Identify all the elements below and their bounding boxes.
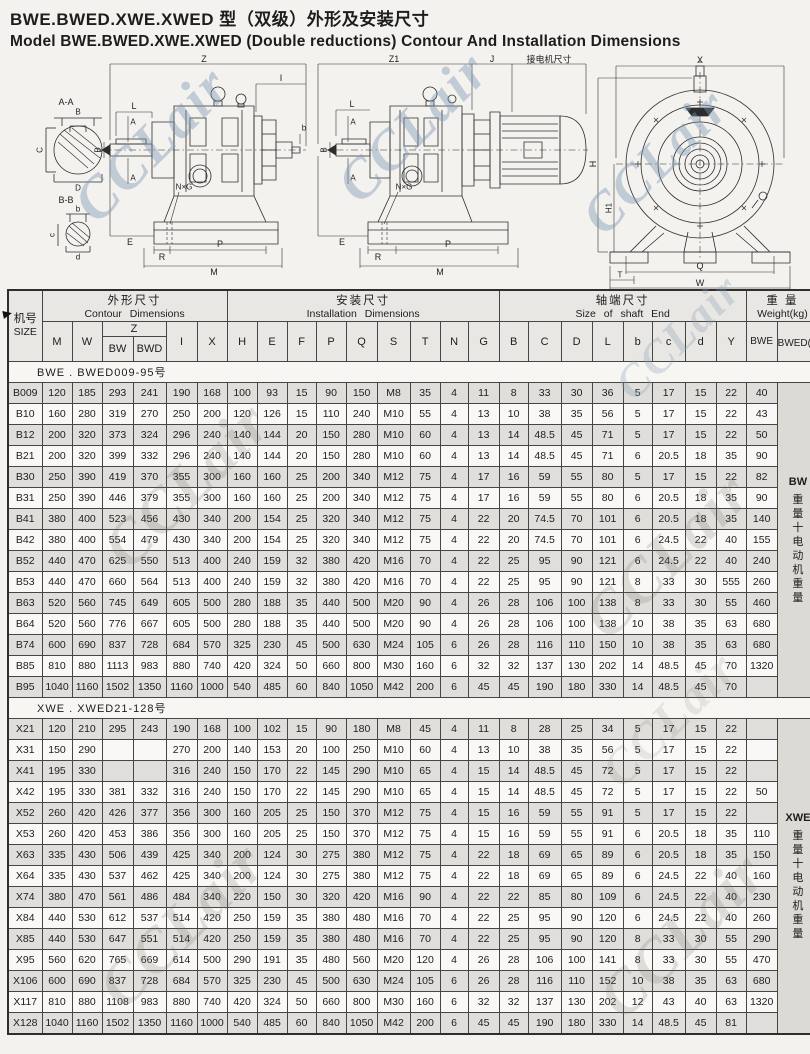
table-row: X5226042042637735630016020525150370M1275… bbox=[8, 803, 810, 824]
value-cell: 100 bbox=[316, 740, 346, 761]
value-cell: 316 bbox=[166, 761, 197, 782]
row-size-cell: X95 bbox=[8, 950, 42, 971]
value-cell: 270 bbox=[133, 404, 166, 425]
value-cell: 8 bbox=[623, 929, 652, 950]
value-cell: 880 bbox=[166, 656, 197, 677]
section-label-aa: A-A bbox=[58, 97, 73, 107]
dim-label-e: E bbox=[127, 237, 133, 247]
value-cell: 150 bbox=[316, 425, 346, 446]
value-cell: 35 bbox=[716, 488, 746, 509]
value-cell: 419 bbox=[102, 467, 133, 488]
value-cell: 32 bbox=[499, 656, 528, 677]
weight-note-char: 量 bbox=[778, 591, 810, 605]
value-cell: 74.5 bbox=[528, 530, 561, 551]
value-cell: 15 bbox=[685, 803, 716, 824]
group-header-1: 安装尺寸Installation Dimensions bbox=[227, 290, 499, 322]
value-cell: 56 bbox=[592, 740, 623, 761]
value-cell: 20.5 bbox=[652, 488, 685, 509]
value-cell: 560 bbox=[346, 950, 377, 971]
value-cell: 420 bbox=[197, 908, 227, 929]
value-cell: 537 bbox=[133, 908, 166, 929]
value-cell: 74.5 bbox=[528, 509, 561, 530]
value-cell: 390 bbox=[72, 488, 102, 509]
value-cell: 35 bbox=[287, 614, 316, 635]
value-cell: 80 bbox=[592, 488, 623, 509]
weight-note-char: 重 bbox=[778, 493, 810, 507]
value-cell: 18 bbox=[685, 824, 716, 845]
value-cell: 17 bbox=[652, 761, 685, 782]
value-cell: 1160 bbox=[72, 677, 102, 698]
value-cell: 200 bbox=[197, 740, 227, 761]
value-cell: 983 bbox=[133, 656, 166, 677]
value-cell: 160 bbox=[227, 824, 257, 845]
value-cell: 55 bbox=[716, 950, 746, 971]
row-size-cell: B53 bbox=[8, 572, 42, 593]
row-size-cell: B21 bbox=[8, 446, 42, 467]
table-row: X128104011601502135011601000540485608401… bbox=[8, 1013, 810, 1035]
weight-note-char: 电 bbox=[778, 871, 810, 885]
value-cell: 110 bbox=[316, 404, 346, 425]
row-size-cell: B12 bbox=[8, 425, 42, 446]
value-cell: M12 bbox=[377, 530, 410, 551]
value-cell: 17 bbox=[468, 467, 499, 488]
value-cell: 48.5 bbox=[652, 1013, 685, 1035]
group-header-zh: 轴端尺寸 bbox=[500, 292, 746, 308]
value-cell: 4 bbox=[440, 845, 468, 866]
value-cell: 15 bbox=[468, 761, 499, 782]
value-cell: 190 bbox=[528, 1013, 561, 1035]
value-cell: 15 bbox=[685, 404, 716, 425]
value-cell: 230 bbox=[746, 887, 777, 908]
value-cell: 75 bbox=[410, 866, 440, 887]
value-cell: 89 bbox=[592, 845, 623, 866]
value-cell: M24 bbox=[377, 635, 410, 656]
value-cell: 24.5 bbox=[652, 530, 685, 551]
value-cell: 647 bbox=[102, 929, 133, 950]
value-cell: 20.5 bbox=[652, 824, 685, 845]
value-cell: 560 bbox=[72, 593, 102, 614]
value-cell: M12 bbox=[377, 824, 410, 845]
value-cell: 22 bbox=[716, 740, 746, 761]
value-cell: 22 bbox=[716, 383, 746, 404]
value-cell: 4 bbox=[440, 404, 468, 425]
value-cell: 20 bbox=[287, 425, 316, 446]
value-cell: 6 bbox=[440, 635, 468, 656]
value-cell: 45 bbox=[561, 761, 592, 782]
value-cell: 14 bbox=[623, 656, 652, 677]
value-cell: 59 bbox=[528, 488, 561, 509]
value-cell: 14 bbox=[499, 761, 528, 782]
section-label: XWE . XWED21-128号 bbox=[8, 698, 810, 719]
table-row: B3125039044637935530016016025200340M1275… bbox=[8, 488, 810, 509]
value-cell: 32 bbox=[468, 992, 499, 1013]
value-cell: 513 bbox=[166, 551, 197, 572]
value-cell: 380 bbox=[316, 908, 346, 929]
value-cell: 59 bbox=[528, 803, 561, 824]
group-header-0: 外形尺寸Contour Dimensions bbox=[42, 290, 227, 322]
value-cell: 20 bbox=[499, 509, 528, 530]
value-cell: 70 bbox=[410, 929, 440, 950]
value-cell: 810 bbox=[42, 656, 72, 677]
value-cell: 4 bbox=[440, 908, 468, 929]
value-cell: 35 bbox=[685, 971, 716, 992]
value-cell: 110 bbox=[561, 971, 592, 992]
value-cell: 5 bbox=[623, 383, 652, 404]
value-cell: 15 bbox=[685, 719, 716, 740]
value-cell: 5 bbox=[623, 719, 652, 740]
value-cell: 484 bbox=[166, 887, 197, 908]
value-cell: 320 bbox=[72, 446, 102, 467]
value-cell: 6 bbox=[440, 992, 468, 1013]
table-row: B5344047066056451340024015932380420M1670… bbox=[8, 572, 810, 593]
dim-label-j: J bbox=[490, 54, 495, 64]
value-cell: 28 bbox=[499, 971, 528, 992]
section-header-row: XWE . XWED21-128号 bbox=[8, 698, 810, 719]
row-size-cell: X84 bbox=[8, 908, 42, 929]
value-cell: 340 bbox=[197, 509, 227, 530]
value-cell: 200 bbox=[316, 488, 346, 509]
value-cell: 30 bbox=[685, 950, 716, 971]
value-cell: 48.5 bbox=[652, 677, 685, 698]
value-cell: 10 bbox=[499, 404, 528, 425]
value-cell: 4 bbox=[440, 887, 468, 908]
value-cell: 740 bbox=[197, 992, 227, 1013]
value-cell: 420 bbox=[227, 992, 257, 1013]
value-cell: 240 bbox=[197, 761, 227, 782]
value-cell: 22 bbox=[685, 551, 716, 572]
value-cell: 625 bbox=[102, 551, 133, 572]
value-cell: M12 bbox=[377, 866, 410, 887]
dimension-table-wrap: 机号SIZE外形尺寸Contour Dimensions安装尺寸Installa… bbox=[7, 289, 810, 1035]
value-cell: 332 bbox=[133, 782, 166, 803]
value-cell: 630 bbox=[346, 635, 377, 656]
value-cell: 8 bbox=[623, 950, 652, 971]
value-cell: 71 bbox=[592, 446, 623, 467]
value-cell: 75 bbox=[410, 824, 440, 845]
drawing-side-view-reducer: Z L A A B I b N×G E R P M A-A B C D B-B … bbox=[4, 54, 310, 290]
value-cell: 124 bbox=[257, 845, 287, 866]
value-cell: 40 bbox=[716, 908, 746, 929]
value-cell: 250 bbox=[227, 929, 257, 950]
value-cell bbox=[746, 740, 777, 761]
dim-label-z1: Z1 bbox=[389, 54, 400, 64]
value-cell: 324 bbox=[133, 425, 166, 446]
value-cell: 380 bbox=[42, 509, 72, 530]
value-cell bbox=[746, 761, 777, 782]
value-cell bbox=[133, 761, 166, 782]
row-size-cell: X117 bbox=[8, 992, 42, 1013]
value-cell: 38 bbox=[528, 740, 561, 761]
value-cell: 290 bbox=[227, 950, 257, 971]
dim-label-a-bottom: A bbox=[350, 174, 355, 183]
value-cell: 560 bbox=[72, 614, 102, 635]
value-cell: 35 bbox=[287, 593, 316, 614]
value-cell: 15 bbox=[468, 824, 499, 845]
value-cell: 170 bbox=[257, 761, 287, 782]
value-cell: 38 bbox=[652, 614, 685, 635]
value-cell: 28 bbox=[499, 635, 528, 656]
value-cell: 121 bbox=[592, 551, 623, 572]
value-cell: 22 bbox=[685, 887, 716, 908]
value-cell: M12 bbox=[377, 509, 410, 530]
value-cell: 370 bbox=[133, 467, 166, 488]
value-cell: 168 bbox=[197, 383, 227, 404]
value-cell: 260 bbox=[746, 572, 777, 593]
column-header-L: L bbox=[592, 322, 623, 362]
value-cell: 485 bbox=[257, 1013, 287, 1035]
value-cell: 45 bbox=[287, 635, 316, 656]
value-cell: 90 bbox=[561, 908, 592, 929]
table-row: B3025039041937035530016016025200340M1275… bbox=[8, 467, 810, 488]
value-cell: 15 bbox=[287, 383, 316, 404]
value-cell: 90 bbox=[561, 929, 592, 950]
column-header-S: S bbox=[377, 322, 410, 362]
value-cell: 17 bbox=[652, 740, 685, 761]
row-size-cell: X106 bbox=[8, 971, 42, 992]
dim-label-z: Z bbox=[201, 54, 207, 64]
table-row: X4119533031624015017022145290M1065415144… bbox=[8, 761, 810, 782]
value-cell: 4 bbox=[440, 782, 468, 803]
weight-note-char: 十 bbox=[778, 521, 810, 535]
table-row: X6433543053746242534020012430275380M1275… bbox=[8, 866, 810, 887]
value-cell: 101 bbox=[592, 509, 623, 530]
value-cell: 728 bbox=[133, 635, 166, 656]
row-size-cell: B63 bbox=[8, 593, 42, 614]
value-cell: 20.5 bbox=[652, 845, 685, 866]
value-cell: 660 bbox=[316, 992, 346, 1013]
table-row: X8444053061253751442025015935380480M1670… bbox=[8, 908, 810, 929]
row-size-cell: X85 bbox=[8, 929, 42, 950]
value-cell: 18 bbox=[499, 866, 528, 887]
group-header-en: Weight(kg) bbox=[747, 308, 810, 320]
value-cell: 300 bbox=[197, 467, 227, 488]
table-row: B009120185293241190168100931590150M83541… bbox=[8, 383, 810, 404]
value-cell: 33 bbox=[652, 929, 685, 950]
value-cell: 20 bbox=[499, 530, 528, 551]
table-row: B951040116015021350116010005404856084010… bbox=[8, 677, 810, 698]
value-cell: 59 bbox=[528, 467, 561, 488]
value-cell: 14 bbox=[499, 782, 528, 803]
value-cell: 150 bbox=[257, 887, 287, 908]
value-cell: 6 bbox=[440, 656, 468, 677]
value-cell: 680 bbox=[746, 614, 777, 635]
value-cell: 33 bbox=[528, 383, 561, 404]
value-cell bbox=[746, 677, 777, 698]
value-cell: 100 bbox=[227, 719, 257, 740]
column-header-C: C bbox=[528, 322, 561, 362]
column-header-M: M bbox=[42, 322, 72, 362]
value-cell: 296 bbox=[166, 425, 197, 446]
value-cell: 240 bbox=[346, 404, 377, 425]
section-label-bb: B-B bbox=[58, 195, 73, 205]
row-size-cell: X63 bbox=[8, 845, 42, 866]
value-cell: 11 bbox=[468, 383, 499, 404]
value-cell: 16 bbox=[499, 488, 528, 509]
value-cell: 470 bbox=[746, 950, 777, 971]
value-cell: 50 bbox=[746, 425, 777, 446]
value-cell: 190 bbox=[166, 383, 197, 404]
value-cell: 200 bbox=[227, 845, 257, 866]
value-cell: 28 bbox=[499, 593, 528, 614]
value-cell: M10 bbox=[377, 425, 410, 446]
value-cell: 144 bbox=[257, 425, 287, 446]
value-cell: 684 bbox=[166, 971, 197, 992]
value-cell: 426 bbox=[102, 803, 133, 824]
value-cell: 340 bbox=[197, 887, 227, 908]
value-cell: 4 bbox=[440, 425, 468, 446]
value-cell: 100 bbox=[227, 383, 257, 404]
value-cell: 35 bbox=[287, 908, 316, 929]
value-cell: 195 bbox=[42, 761, 72, 782]
dim-label-h1: H1 bbox=[605, 203, 614, 213]
value-cell: 480 bbox=[346, 908, 377, 929]
value-cell: 50 bbox=[287, 656, 316, 677]
value-cell: 561 bbox=[102, 887, 133, 908]
table-row: X9556062076566961450029019135480560M2012… bbox=[8, 950, 810, 971]
value-cell: 45 bbox=[561, 782, 592, 803]
value-cell: 40 bbox=[685, 992, 716, 1013]
value-cell: 420 bbox=[346, 572, 377, 593]
value-cell: 25 bbox=[287, 467, 316, 488]
value-cell: 55 bbox=[716, 929, 746, 950]
value-cell: 120 bbox=[410, 950, 440, 971]
value-cell: 540 bbox=[227, 1013, 257, 1035]
row-size-cell: B74 bbox=[8, 635, 42, 656]
value-cell: 120 bbox=[42, 383, 72, 404]
value-cell: 275 bbox=[316, 845, 346, 866]
column-header-T: T bbox=[410, 322, 440, 362]
value-cell bbox=[746, 1013, 777, 1035]
value-cell: 480 bbox=[346, 929, 377, 950]
value-cell: 486 bbox=[133, 887, 166, 908]
value-cell: 35 bbox=[716, 824, 746, 845]
value-cell: 320 bbox=[72, 425, 102, 446]
value-cell: 150 bbox=[746, 845, 777, 866]
value-cell: 837 bbox=[102, 971, 133, 992]
value-cell: 160 bbox=[227, 488, 257, 509]
value-cell: 293 bbox=[102, 383, 133, 404]
value-cell: 56 bbox=[592, 404, 623, 425]
value-cell: 200 bbox=[227, 866, 257, 887]
value-cell: 33 bbox=[652, 593, 685, 614]
value-cell: 335 bbox=[42, 845, 72, 866]
dim-label-m: M bbox=[210, 267, 218, 277]
value-cell: 430 bbox=[166, 509, 197, 530]
value-cell: 200 bbox=[227, 509, 257, 530]
value-cell: 32 bbox=[287, 572, 316, 593]
value-cell: 22 bbox=[716, 782, 746, 803]
value-cell: 390 bbox=[72, 467, 102, 488]
value-cell: 462 bbox=[133, 866, 166, 887]
dim-label-w: W bbox=[696, 278, 705, 288]
value-cell: 240 bbox=[197, 425, 227, 446]
value-cell: 340 bbox=[346, 488, 377, 509]
value-cell: 63 bbox=[716, 614, 746, 635]
row-size-cell: B52 bbox=[8, 551, 42, 572]
value-cell: 116 bbox=[528, 635, 561, 656]
row-size-cell: X31 bbox=[8, 740, 42, 761]
value-cell bbox=[746, 803, 777, 824]
value-cell: 420 bbox=[72, 803, 102, 824]
value-cell: 330 bbox=[592, 677, 623, 698]
value-cell: 72 bbox=[592, 782, 623, 803]
value-cell: 25 bbox=[499, 551, 528, 572]
dim-label-bb-d: d bbox=[76, 253, 80, 262]
value-cell: 330 bbox=[72, 782, 102, 803]
value-cell: 377 bbox=[133, 803, 166, 824]
value-cell: 91 bbox=[592, 803, 623, 824]
value-cell: 1160 bbox=[166, 1013, 197, 1035]
value-cell: 400 bbox=[197, 572, 227, 593]
column-header-G: G bbox=[468, 322, 499, 362]
value-cell: 564 bbox=[133, 572, 166, 593]
value-cell: 81 bbox=[716, 1013, 746, 1035]
value-cell: 260 bbox=[42, 824, 72, 845]
value-cell: 380 bbox=[42, 530, 72, 551]
weight-note-char: 重 bbox=[778, 913, 810, 927]
value-cell: 270 bbox=[166, 740, 197, 761]
dim-label-l: L bbox=[349, 99, 354, 109]
value-cell: 4 bbox=[440, 383, 468, 404]
table-row: B1220032037332429624014014420150280M1060… bbox=[8, 425, 810, 446]
value-cell: 460 bbox=[746, 593, 777, 614]
value-cell: 45 bbox=[499, 677, 528, 698]
value-cell: 45 bbox=[685, 656, 716, 677]
value-cell: 22 bbox=[716, 761, 746, 782]
value-cell: M10 bbox=[377, 404, 410, 425]
value-cell: 30 bbox=[287, 887, 316, 908]
value-cell: 10 bbox=[499, 740, 528, 761]
value-cell: 205 bbox=[257, 803, 287, 824]
value-cell: 22 bbox=[716, 425, 746, 446]
value-cell: 290 bbox=[746, 929, 777, 950]
value-cell: 6 bbox=[623, 908, 652, 929]
table-row: X3115029027020014015320100250M1060413103… bbox=[8, 740, 810, 761]
value-cell: 260 bbox=[746, 908, 777, 929]
value-cell: 140 bbox=[746, 509, 777, 530]
value-cell: 45 bbox=[468, 1013, 499, 1035]
value-cell: 4 bbox=[440, 614, 468, 635]
value-cell: 150 bbox=[346, 383, 377, 404]
value-cell: 35 bbox=[716, 509, 746, 530]
value-cell: 106 bbox=[528, 950, 561, 971]
value-cell: 70 bbox=[561, 509, 592, 530]
value-cell: 40 bbox=[716, 866, 746, 887]
value-cell: 555 bbox=[716, 572, 746, 593]
value-cell: 355 bbox=[166, 467, 197, 488]
value-cell: 5 bbox=[623, 803, 652, 824]
value-cell: 1108 bbox=[102, 992, 133, 1013]
column-header-BWED(约): BWED(约) bbox=[777, 322, 810, 362]
value-cell: 55 bbox=[410, 404, 440, 425]
value-cell: 60 bbox=[410, 425, 440, 446]
value-cell: 300 bbox=[197, 803, 227, 824]
value-cell: 40 bbox=[716, 530, 746, 551]
row-size-cell: X52 bbox=[8, 803, 42, 824]
value-cell: 35 bbox=[287, 950, 316, 971]
row-size-cell: B10 bbox=[8, 404, 42, 425]
value-cell: 506 bbox=[102, 845, 133, 866]
value-cell: 30 bbox=[287, 845, 316, 866]
value-cell: 800 bbox=[346, 656, 377, 677]
weight-note-char: 量 bbox=[778, 507, 810, 521]
value-cell: 35 bbox=[716, 446, 746, 467]
column-header-E: E bbox=[257, 322, 287, 362]
value-cell: 140 bbox=[227, 425, 257, 446]
value-cell: 105 bbox=[410, 971, 440, 992]
value-cell: 500 bbox=[316, 635, 346, 656]
value-cell: 202 bbox=[592, 656, 623, 677]
